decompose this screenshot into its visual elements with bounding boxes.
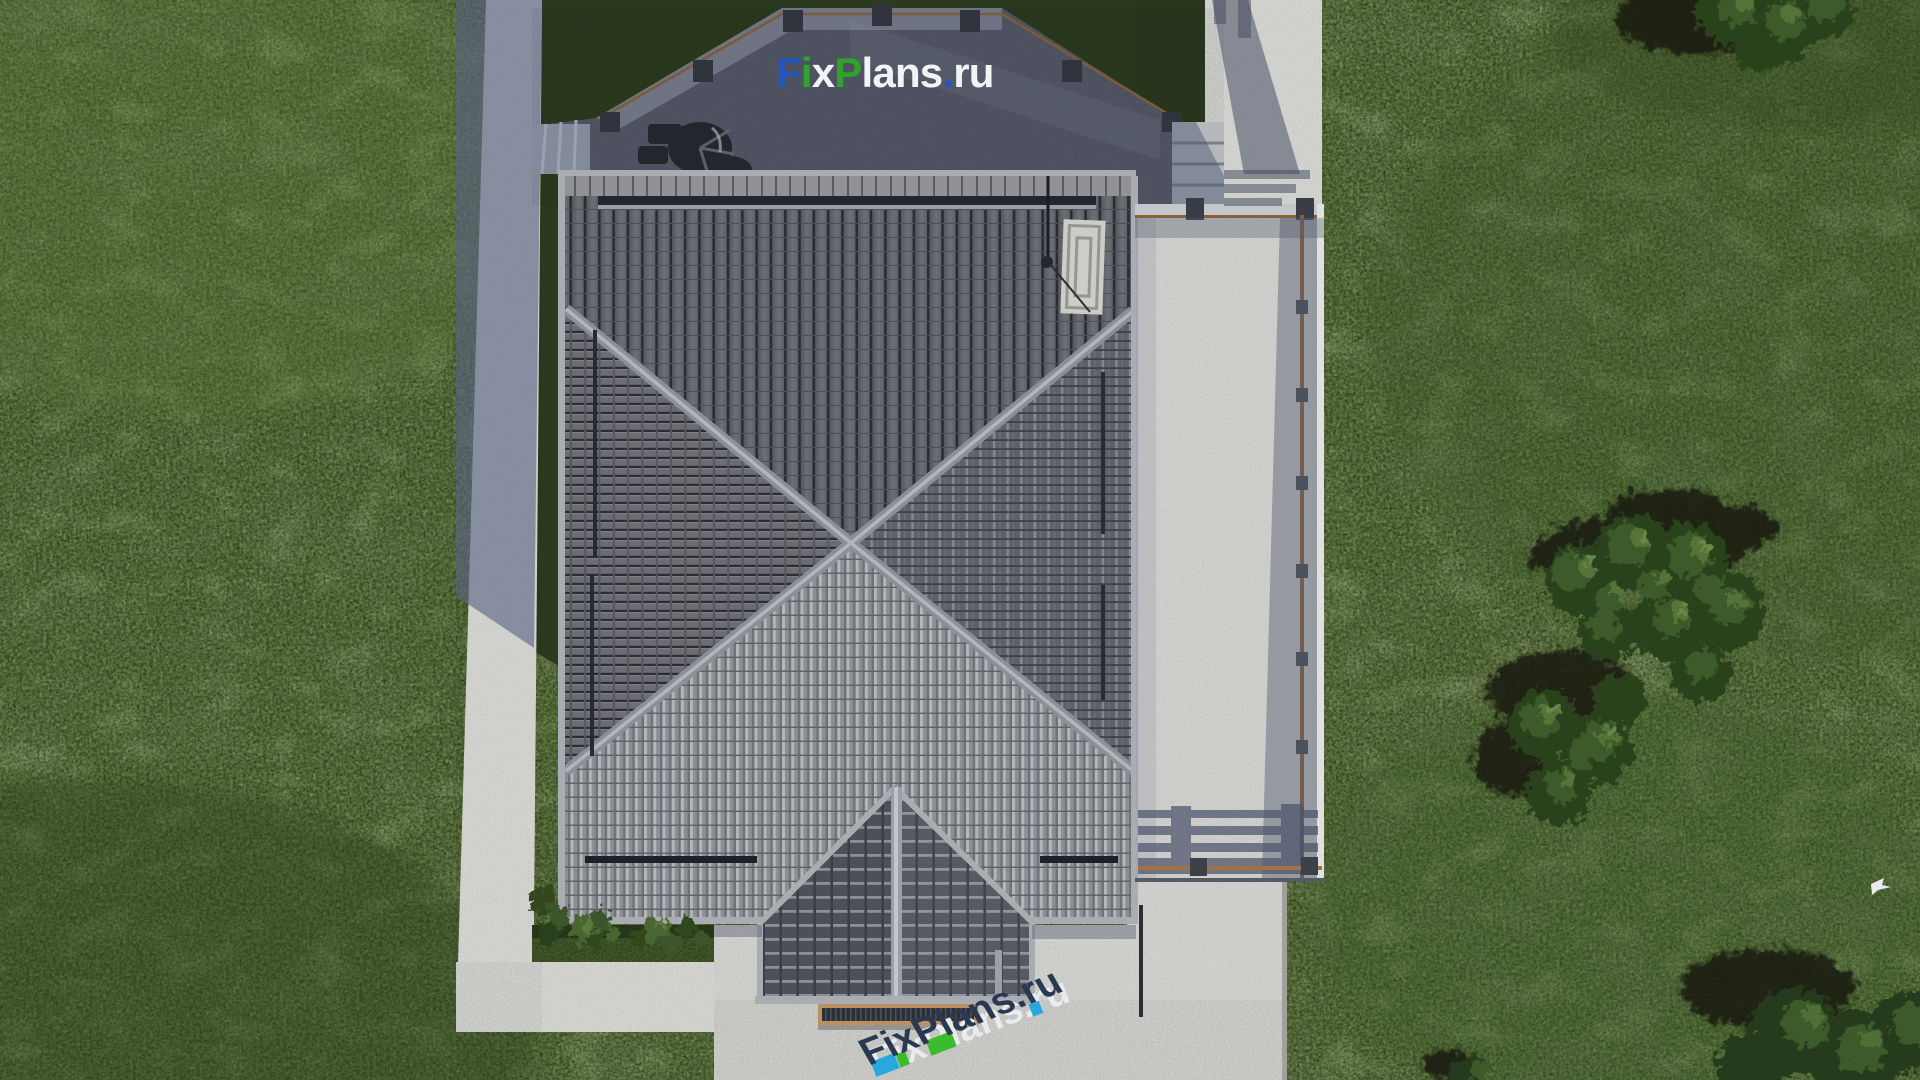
svg-text:FixPlans.ru: FixPlans.ru — [776, 49, 994, 96]
